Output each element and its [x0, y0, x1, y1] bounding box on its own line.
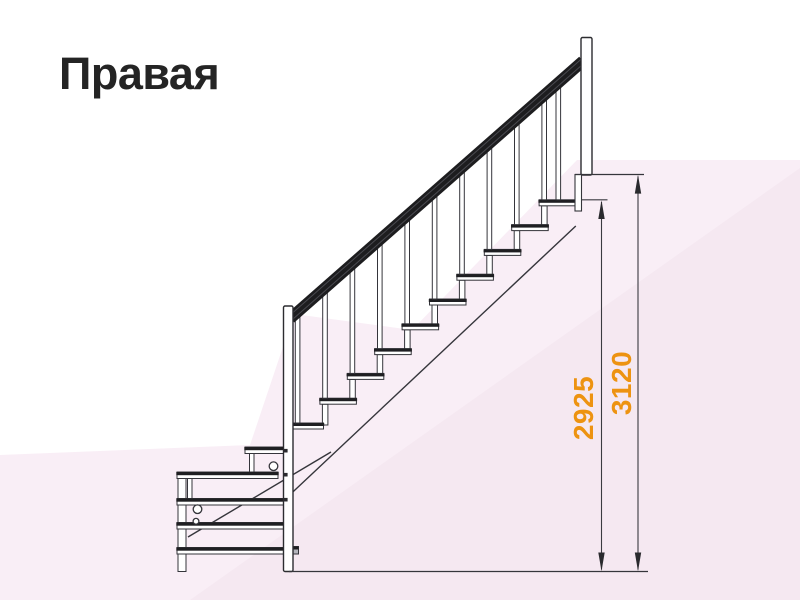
bolt-dot — [284, 498, 288, 502]
tread-spacer — [432, 305, 438, 326]
bolt-hole — [269, 462, 278, 471]
dimension-label-2925: 2925 — [568, 376, 600, 440]
stair-diagram-canvas: Правая 2925 3120 — [0, 0, 800, 600]
baluster — [350, 264, 355, 373]
tread-spacer — [542, 206, 548, 227]
bolt-dot — [284, 473, 288, 477]
upper-newel-post — [581, 38, 592, 176]
winder-support — [250, 451, 255, 473]
dimension-label-3120: 3120 — [606, 351, 638, 415]
landing-fascia — [575, 175, 582, 212]
baluster — [405, 216, 410, 324]
baluster — [378, 240, 383, 349]
baluster — [323, 288, 328, 398]
page-title: Правая — [59, 50, 219, 97]
baluster — [542, 96, 547, 200]
baluster — [487, 144, 492, 249]
baluster — [460, 168, 465, 274]
baluster — [515, 120, 520, 225]
baluster — [432, 192, 437, 299]
winder-support — [188, 479, 193, 500]
tread-spacer — [514, 231, 520, 252]
bolt-hole — [193, 518, 199, 524]
tread-spacer — [405, 330, 411, 351]
baluster — [556, 83, 561, 200]
tread-spacer — [350, 379, 356, 400]
tread-spacer — [377, 355, 383, 376]
tread-spacer — [487, 255, 493, 276]
bolt-dot — [284, 449, 288, 453]
bolt-hole — [193, 505, 202, 514]
baluster — [295, 312, 300, 423]
lower-newel-post — [284, 306, 294, 572]
tread-spacer — [322, 404, 328, 425]
tread-spacer — [459, 280, 465, 301]
